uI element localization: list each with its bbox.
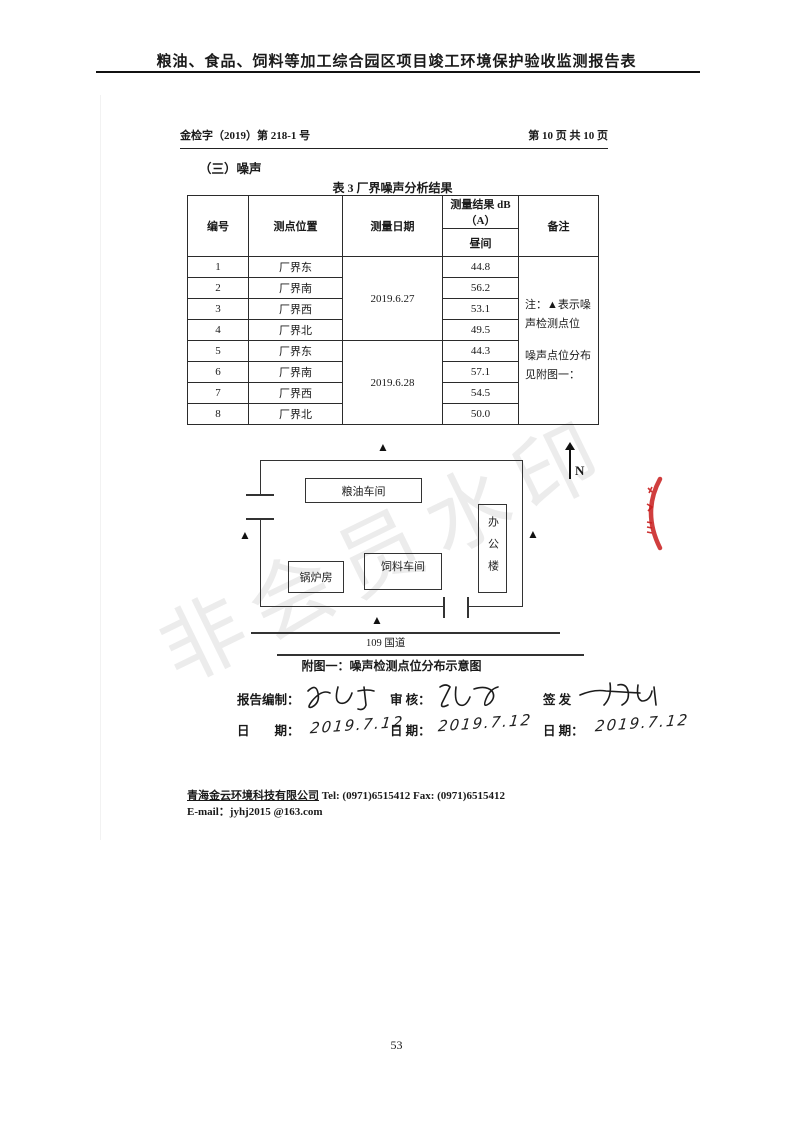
cell-value: 54.5 — [443, 383, 519, 404]
report-banner-title: 粮油、食品、饲料等加工综合园区项目竣工环境保护验收监测报告表 — [0, 50, 793, 71]
remark-spacer — [525, 334, 592, 347]
diagram-caption: 附图一：噪声检测点位分布示意图 — [230, 657, 553, 674]
scanned-report-page: { "page": { "top_title": "粮油、食品、饲料等加工综合园… — [0, 0, 793, 1122]
table-row: 1 厂界东 2019.6.27 44.8 注：▲表示噪声检测点位 噪声点位分布见… — [188, 257, 599, 278]
remark-line2: 噪声点位分布见附图一： — [525, 347, 592, 386]
north-label: N — [575, 463, 584, 479]
cell-location: 厂界西 — [249, 299, 343, 320]
grain-oil-workshop: 粮油车间 — [305, 478, 422, 503]
boiler-room-label: 锅炉房 — [300, 569, 333, 585]
preparer-signature — [302, 681, 387, 715]
footer-company-line: 青海金云环境科技有限公司 Tel: (0971)6515412 Fax: (09… — [187, 787, 505, 803]
cell-id: 1 — [188, 257, 249, 278]
cell-location: 厂界东 — [249, 257, 343, 278]
reviewer-signature — [434, 679, 512, 717]
company-contacts: Tel: (0971)6515412 Fax: (0971)6515412 — [322, 790, 505, 802]
cell-date-group1: 2019.6.27 — [343, 257, 443, 341]
noise-point-marker-west: ▲ — [239, 529, 251, 541]
page-number: 53 — [0, 1038, 793, 1053]
col-header-id: 编号 — [188, 196, 249, 257]
cell-location: 厂界北 — [249, 404, 343, 425]
cell-value: 49.5 — [443, 320, 519, 341]
banner-divider — [96, 71, 700, 73]
col-header-date: 测量日期 — [343, 196, 443, 257]
feed-workshop-label: 饲料车间 — [381, 558, 425, 574]
office-building-label: 办公楼 — [485, 516, 501, 582]
scan-page-edge — [100, 95, 101, 840]
col-header-period: 昼间 — [443, 229, 519, 257]
cell-location: 厂界南 — [249, 278, 343, 299]
west-gate-tick-bottom — [246, 518, 274, 520]
company-name: 青海金云环境科技有限公司 — [187, 790, 319, 802]
cell-id: 6 — [188, 362, 249, 383]
cell-id: 5 — [188, 341, 249, 362]
issuer-date-label: 日 期： — [543, 720, 584, 739]
road-edge-lower — [277, 654, 584, 656]
cell-id: 7 — [188, 383, 249, 404]
road-edge-upper — [251, 632, 560, 634]
cell-location: 厂界东 — [249, 341, 343, 362]
preparer-date-label: 日 期： — [237, 720, 300, 739]
west-gate-gap — [257, 496, 264, 518]
noise-point-marker-north: ▲ — [377, 441, 389, 453]
cell-value: 57.1 — [443, 362, 519, 383]
south-gate-tick-right — [467, 597, 469, 618]
noise-point-marker-south: ▲ — [371, 614, 383, 626]
north-arrow-shaft — [569, 449, 571, 479]
cell-value: 44.8 — [443, 257, 519, 278]
cell-value: 50.0 — [443, 404, 519, 425]
boiler-room: 锅炉房 — [288, 561, 344, 593]
grain-oil-workshop-label: 粮油车间 — [342, 483, 386, 499]
remark-line1: 注：▲表示噪声检测点位 — [525, 296, 592, 335]
office-building: 办公楼 — [478, 504, 507, 593]
noise-results-table: 编号 测点位置 测量日期 测量结果 dB（A） 备注 昼间 1 厂界东 2019… — [187, 195, 599, 425]
footer-email-line: E-mail：jyhj2015 @163.com — [187, 803, 323, 819]
cell-id: 2 — [188, 278, 249, 299]
road-label: 109 国道 — [366, 635, 405, 650]
south-gate-tick-left — [443, 597, 445, 618]
cell-id: 3 — [188, 299, 249, 320]
preparer-label: 报告编制： — [237, 689, 300, 708]
noise-point-marker-east: ▲ — [527, 528, 539, 540]
page-indicator: 第 10 页 共 10 页 — [528, 127, 608, 143]
col-header-result: 测量结果 dB（A） — [443, 196, 519, 229]
issuer-label: 签 发 — [543, 689, 571, 708]
cell-location: 厂界西 — [249, 383, 343, 404]
reviewer-date-label: 日 期： — [390, 720, 431, 739]
table-title: 表 3 厂界噪声分析结果 — [187, 179, 598, 196]
reviewer-label: 审 核： — [390, 689, 431, 708]
cell-location: 厂界北 — [249, 320, 343, 341]
cell-date-group2: 2019.6.28 — [343, 341, 443, 425]
issuer-signature — [576, 677, 661, 717]
section-heading: （三）噪声 — [199, 158, 262, 177]
red-seal-fragment — [640, 474, 674, 554]
cell-remark: 注：▲表示噪声检测点位 噪声点位分布见附图一： — [519, 257, 599, 425]
south-gate-gap — [444, 603, 467, 610]
col-header-location: 测点位置 — [249, 196, 343, 257]
cell-id: 4 — [188, 320, 249, 341]
doc-number: 金检字（2019）第 218-1 号 — [180, 127, 310, 143]
cell-id: 8 — [188, 404, 249, 425]
north-arrow-head — [565, 442, 575, 450]
cell-value: 53.1 — [443, 299, 519, 320]
document-header: 金检字（2019）第 218-1 号 第 10 页 共 10 页 — [180, 127, 608, 149]
cell-value: 44.3 — [443, 341, 519, 362]
west-gate-tick-top — [246, 494, 274, 496]
feed-workshop: 饲料车间 — [364, 553, 442, 590]
cell-location: 厂界南 — [249, 362, 343, 383]
cell-value: 56.2 — [443, 278, 519, 299]
col-header-remark: 备注 — [519, 196, 599, 257]
